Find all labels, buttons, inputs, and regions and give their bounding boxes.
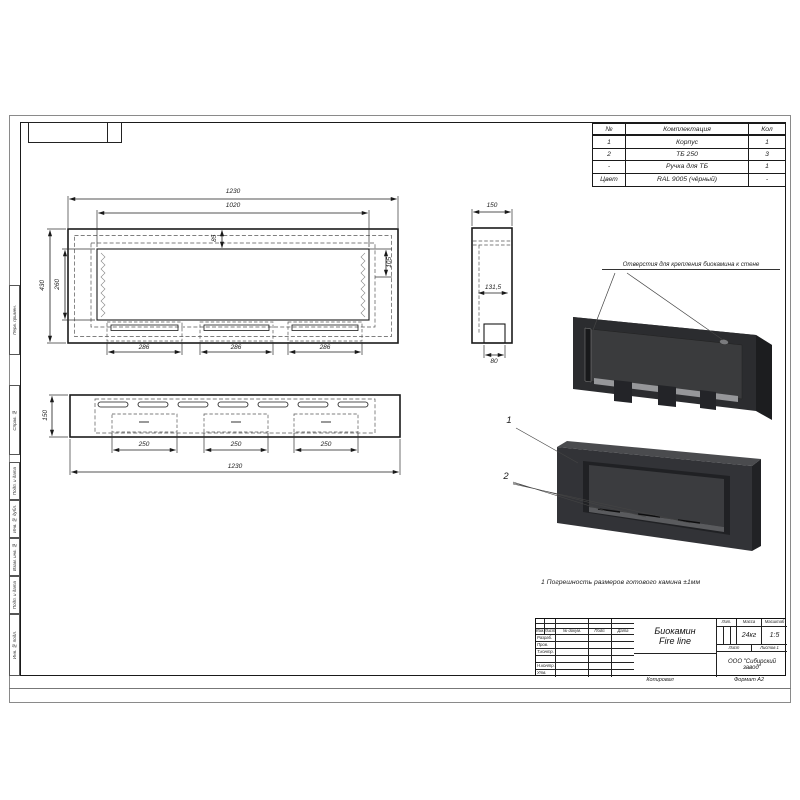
dim-front-slot-1: 286 [114, 345, 174, 352]
dim-top-slot-2: 250 [206, 442, 266, 449]
front-outer-rect [68, 229, 398, 343]
dim-side-inner: 131,5 [463, 285, 523, 292]
iso-back-view [573, 273, 772, 420]
dim-front-width: 1230 [203, 189, 263, 196]
kopiroval-label: Копировал [600, 678, 720, 684]
top-air-slots [98, 402, 368, 407]
callout-2-label: 2 [499, 472, 513, 482]
company-cell: ООО "Сибирский завод" [717, 652, 787, 677]
tb-masshtab-value: 1:5 [762, 627, 787, 645]
tb-row-prov: Пров. [536, 642, 634, 649]
tb-lmm-values: 24кг 1:5 [717, 627, 787, 645]
tb-lit-header: Лит. [717, 619, 737, 627]
front-seal-zigzag-left [101, 253, 105, 317]
front-seal-zigzag-right [361, 253, 365, 317]
doc-title-line1: Биокамин [654, 626, 695, 636]
format-label: Формат А2 [712, 678, 786, 684]
tb-list-row: Лист Листов 1 [717, 645, 787, 652]
front-dashed-rect-2 [91, 243, 375, 327]
iso-back-mount-rail [585, 328, 591, 382]
iso-back-side-face [756, 335, 772, 420]
dim-top-depth: 150 [43, 400, 50, 430]
dim-front-slot-3: 286 [295, 345, 355, 352]
front-view [47, 196, 398, 355]
tb-label: Н.контр. [536, 663, 556, 670]
tb-row-blank [536, 656, 634, 663]
doc-code-cell [634, 654, 717, 677]
top-view [49, 395, 400, 475]
iso-back-leg-2 [658, 385, 676, 407]
iso-front-view [513, 428, 761, 551]
front-opening-rect [97, 249, 369, 320]
dim-front-inner-width: 1020 [203, 203, 263, 210]
dim-top-slot-1: 250 [114, 442, 174, 449]
dim-front-inner-height: 260 [55, 269, 62, 299]
tb-lmm-header: Лит. Масса Масштаб [717, 619, 787, 627]
doc-title-line2: Fire line [659, 636, 691, 646]
iso-back-leg-3 [700, 390, 716, 410]
iso-back-leg-1 [614, 380, 632, 403]
dim-side-bottom: 80 [464, 359, 524, 366]
doc-title-cell: Биокамин Fire line [634, 619, 717, 654]
dim-side-depth: 150 [462, 203, 522, 210]
front-extension-lines [47, 196, 398, 355]
side-dashed-top [473, 241, 511, 245]
tb-row-nkontr: Н.контр. [536, 663, 634, 670]
dim-top-width: 1230 [205, 464, 265, 471]
tb-label: Разраб. [536, 635, 556, 642]
top-dimension-lines [52, 397, 399, 473]
dim-front-right-offset: 105 [387, 247, 394, 277]
company-line2: завод" [743, 665, 761, 671]
callout-1-label: 1 [502, 416, 516, 426]
front-dimension-lines [50, 199, 397, 352]
tb-label: Т.контр. [536, 649, 556, 656]
dim-front-top-offset: 85 [212, 223, 219, 253]
side-burner-box [484, 324, 505, 343]
front-burner-1-slot [111, 325, 178, 331]
front-burner-3-slot [292, 325, 358, 331]
front-dashed-rect-1 [75, 236, 392, 337]
tolerance-note: 1 Погрешность размеров готового камина ±… [541, 580, 700, 587]
front-burner-2-slot [204, 325, 269, 331]
tb-listov-label: Листов 1 [752, 645, 787, 652]
tb-massa-header: Масса [737, 619, 762, 627]
tb-massa-value: 24кг [737, 627, 762, 645]
tb-masshtab-header: Масштаб [762, 619, 787, 627]
wall-mount-annotation: Отверстия для крепления биокамина к стен… [602, 262, 780, 270]
iso-front-side-face [752, 459, 761, 551]
drawing-page: Перв. примен. Справ. № Подп. и дата Инв.… [0, 0, 800, 800]
dim-front-height: 430 [40, 270, 47, 300]
dim-front-slot-2: 286 [206, 345, 266, 352]
tb-row-razrab: Разраб. [536, 635, 634, 642]
tb-label: Пров. [536, 642, 556, 649]
tb-label: Утв. [536, 670, 556, 677]
title-block: Изм. Лист № докум. Подп. Дата Разраб. Пр… [535, 618, 786, 676]
tb-row-utv: Утв. [536, 670, 634, 677]
dim-top-slot-3: 250 [296, 442, 356, 449]
top-outer-rect [70, 395, 400, 437]
top-burner-dashed [112, 414, 358, 432]
tb-list-label: Лист [717, 645, 752, 652]
top-dashed-rect [95, 399, 375, 433]
tb-row-tkontr: Т.контр. [536, 649, 634, 656]
